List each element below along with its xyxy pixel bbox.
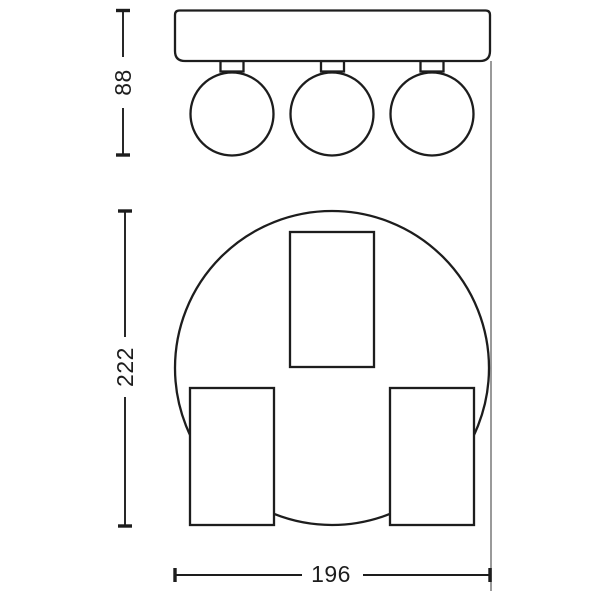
dimension-overall-length: 222 bbox=[112, 211, 138, 526]
dimension-drawing-canvas: 88 222 196 bbox=[0, 0, 600, 600]
dim-label-88: 88 bbox=[110, 69, 136, 96]
plan-head-top bbox=[290, 232, 374, 367]
dimension-head-height: 88 bbox=[110, 11, 136, 156]
dim-label-222: 222 bbox=[112, 347, 138, 387]
spot-stem-center bbox=[321, 61, 344, 72]
spot-head-right bbox=[391, 73, 474, 156]
mounting-bar bbox=[175, 11, 490, 62]
plan-head-left bbox=[190, 388, 274, 525]
dimension-overall-width: 196 bbox=[175, 561, 490, 587]
plan-head-right bbox=[390, 388, 474, 525]
dimension-drawing: 88 222 196 bbox=[0, 0, 600, 600]
side-view bbox=[175, 11, 490, 156]
plan-view bbox=[175, 211, 489, 525]
spot-stem-right bbox=[421, 61, 444, 72]
spot-head-left bbox=[191, 73, 274, 156]
dim-label-196: 196 bbox=[311, 561, 351, 587]
spot-stem-left bbox=[221, 61, 244, 72]
spot-head-center bbox=[291, 73, 374, 156]
